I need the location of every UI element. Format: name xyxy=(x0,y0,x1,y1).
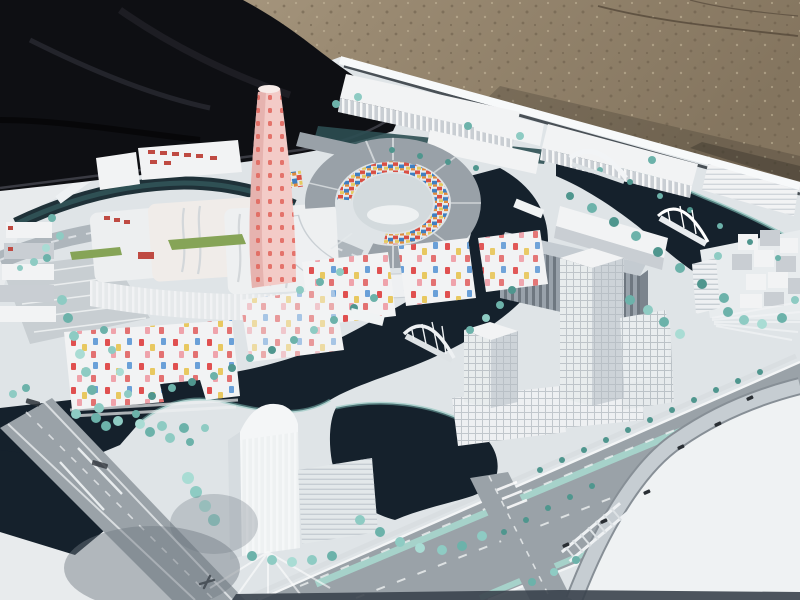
tree xyxy=(30,258,38,266)
tree xyxy=(559,457,565,463)
tree xyxy=(417,153,423,159)
tree xyxy=(113,416,123,426)
photo-of-architecture-model xyxy=(0,0,800,600)
tree xyxy=(723,307,733,317)
tree xyxy=(290,336,298,344)
tree xyxy=(135,419,145,429)
tree xyxy=(157,421,167,431)
tree xyxy=(370,294,378,302)
tree xyxy=(316,278,324,286)
tree xyxy=(48,214,56,222)
tree xyxy=(355,515,365,525)
tree xyxy=(657,193,663,199)
tree xyxy=(791,296,799,304)
tree xyxy=(675,263,685,273)
tree xyxy=(567,494,573,500)
tree xyxy=(653,247,663,257)
tree xyxy=(482,314,490,322)
tree xyxy=(389,147,395,153)
tree xyxy=(572,556,580,564)
tree xyxy=(581,447,587,453)
tower-cap xyxy=(258,85,280,93)
tree xyxy=(168,384,176,392)
tree xyxy=(648,156,656,164)
tree xyxy=(145,427,155,437)
tree xyxy=(647,417,653,423)
tree xyxy=(659,317,669,327)
tree xyxy=(528,578,536,586)
tree xyxy=(296,286,304,294)
tree xyxy=(747,239,753,245)
tree xyxy=(332,100,340,108)
tree xyxy=(91,413,101,423)
tree xyxy=(132,410,140,418)
tree xyxy=(116,368,124,376)
tree xyxy=(496,301,504,309)
tree xyxy=(330,316,338,324)
tree xyxy=(643,305,653,315)
tree xyxy=(9,390,17,398)
tree xyxy=(165,433,175,443)
tree xyxy=(57,295,67,305)
tree xyxy=(508,286,516,294)
model-photo-scene xyxy=(0,0,800,600)
tree xyxy=(713,387,719,393)
tree xyxy=(17,265,23,271)
tree xyxy=(516,132,524,140)
tree xyxy=(445,159,451,165)
tree xyxy=(457,541,467,551)
tree xyxy=(587,203,597,213)
tree xyxy=(717,223,723,229)
tree xyxy=(631,231,641,241)
tree xyxy=(336,268,344,276)
tree xyxy=(201,424,209,432)
tree xyxy=(691,397,697,403)
tree xyxy=(124,390,132,398)
tree xyxy=(477,531,487,541)
tree xyxy=(75,349,85,359)
tree xyxy=(69,331,79,341)
tree xyxy=(473,165,479,171)
tree xyxy=(186,438,194,446)
tree xyxy=(675,329,685,339)
tree xyxy=(354,93,362,101)
tree xyxy=(550,568,558,576)
tree xyxy=(101,421,111,431)
tree xyxy=(466,326,474,334)
tree xyxy=(697,279,707,289)
south-podium xyxy=(298,458,378,544)
tree xyxy=(100,326,108,334)
tree xyxy=(307,555,317,565)
tree xyxy=(287,557,297,567)
tree xyxy=(775,255,781,261)
tree xyxy=(246,354,254,362)
tree xyxy=(267,555,277,565)
tree xyxy=(71,409,81,419)
tree xyxy=(625,295,635,305)
tree xyxy=(464,122,472,130)
tree xyxy=(268,346,276,354)
tree xyxy=(719,293,729,303)
tree xyxy=(627,179,633,185)
row-slab xyxy=(96,152,140,190)
tree xyxy=(87,385,97,395)
tree xyxy=(42,244,50,252)
tree xyxy=(179,423,189,433)
tree xyxy=(148,392,156,400)
tree xyxy=(589,483,595,489)
tree xyxy=(537,467,543,473)
tree xyxy=(501,529,507,535)
tree xyxy=(777,313,787,323)
tree xyxy=(94,403,104,413)
tree xyxy=(210,372,218,380)
tree xyxy=(247,551,257,561)
tree xyxy=(108,346,116,354)
tree xyxy=(81,367,91,377)
tree xyxy=(310,326,318,334)
tree xyxy=(566,192,574,200)
tree xyxy=(714,252,722,260)
tree xyxy=(182,472,194,484)
tree xyxy=(395,537,405,547)
tree xyxy=(735,378,741,384)
court-pavilion xyxy=(367,205,419,224)
tree xyxy=(375,527,385,537)
tree xyxy=(188,378,196,386)
tree xyxy=(56,232,64,240)
tree xyxy=(327,551,337,561)
tree xyxy=(545,505,551,511)
tree xyxy=(609,217,619,227)
tree xyxy=(437,545,447,555)
tree xyxy=(603,437,609,443)
tree xyxy=(22,384,30,392)
far-west-terrace-rows xyxy=(0,222,56,322)
tree xyxy=(415,543,425,553)
tree xyxy=(757,369,763,375)
tree xyxy=(43,254,51,262)
tree xyxy=(228,364,236,372)
tree xyxy=(739,315,749,325)
tree xyxy=(757,319,767,329)
tree xyxy=(669,407,675,413)
tree xyxy=(63,313,73,323)
tree xyxy=(625,427,631,433)
tree xyxy=(523,517,529,523)
